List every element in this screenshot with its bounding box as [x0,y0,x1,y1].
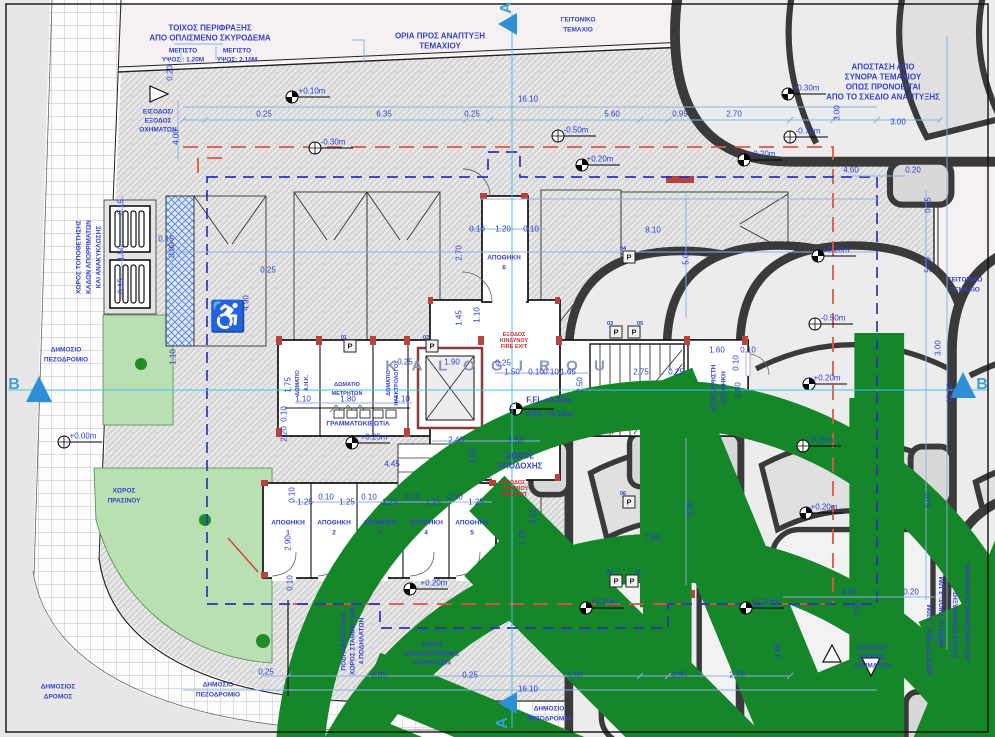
storage6-label: ΑΠΟΘΗΚΗ [487,255,521,262]
dim-label: 1.60 [709,346,725,355]
spot-level: +0.20m [751,598,778,607]
reception-label: ΧΩΡΟΣ [506,452,534,461]
development-limit-label: ΟΡΙΑ ΠΡΟΣ ΑΝΑΠΤΥΞΗ [395,32,485,41]
common-storage-label: ΑΠΟΘΗΚΗ [721,371,728,405]
spot-level: -0.30m [809,436,834,445]
turning-area-label: ΟΧΗΜΑΤΩΝ [413,660,450,667]
road-label: ΔΗΜΟΣΙΟΣ [41,684,76,691]
dim-label: 2.40 [448,436,464,445]
storage-room-label: ΑΠΟΘΗΚΗ [317,520,351,527]
bike-parking-label: ΧΩΡΟΣ ΣΤΑΘΜΕΥΣΗΣ [350,607,357,675]
dim-label: 0.25 [260,266,276,275]
parking-tag: P [623,496,636,509]
dim-label: 2.80 [734,382,743,398]
reception-label: ΥΠΟΔΟΧΗΣ [498,462,543,471]
dim-label: 0.95 [671,671,687,680]
dim-label: 0.10 [318,493,334,502]
spot-level: +0.25m [361,433,388,442]
vehicle-access-label: ΕΞΟΔΟΣ [859,654,886,661]
parking-number: 07 [635,570,641,576]
dim-label: 8.10 [645,226,661,235]
dim-label: 1.50 [508,436,524,445]
dim-label: 5.00 [686,501,695,517]
storage-room-number: 5 [470,530,474,537]
parking-number: 06 [620,491,626,497]
dim-label: 3.90 [168,242,177,258]
dim-label: 0.25 [495,359,511,368]
dim-label: 0.10 [361,493,377,502]
turning-area-label: ΧΩΡΟΣ [421,642,444,649]
parking-tag: P [623,251,636,264]
disabled-aisle-hatch [166,196,194,346]
fence-label: ΤΟΙΧΟΣ ΠΕΡΙΦΡΑΞΗΣ [168,24,251,33]
fence-label-right: ΑΠΟ ΟΠΛΙΣΜΕΝΟ ΣΚΥΡΟΔΕΜΑ [965,563,972,662]
room-ahk-label: Α.Η.Κ. [304,375,310,392]
dim-label: 5.60 [567,671,583,680]
dim-label: 0.10 [286,575,295,591]
mailboxes-label: ΓΡΑΜΜΑΤΟΚΙΒΩΤΙΑ [326,421,389,428]
dim-label: 3.00 [833,105,842,121]
dim-label: 1.75 [518,530,527,546]
mailbox-slots [334,410,396,418]
max-height-label: ΥΨΟΣ : 1.20M [162,57,204,64]
dim-label: 0.25 [464,110,480,119]
spot-level: -0.70m [796,127,821,136]
bins-label: ΚΑΙ ΑΝΑΚΥΚΛΩΣΗΣ [96,226,103,289]
dim-label: 4.65 [841,588,857,597]
parking-tag: P [344,340,357,353]
storage-room-label: ΑΠΟΘΗΚΗ [455,520,489,527]
waste-bins [104,200,156,314]
parking-tag: P [626,575,639,588]
bike-parking-label: ΠΟΔΗΛΑΤΟΣΤΑΣΙΟ [341,611,348,670]
vehicle-access-label: ΟΧΗΜΑΤΩΝ [853,663,890,670]
fence-label-right: ΜΕΓΙΣΤΟ ΥΨΟΣ: 2.10M [939,577,946,648]
green-area-label: ΧΩΡΟΣ [113,488,136,495]
fence-label-right: ΤΟΙΧΟΣ ΠΕΡΙΦΡΑΞΗΣ [953,591,960,659]
dim-label: 1.50 [117,245,126,261]
dim-label: 2.20 [280,426,289,442]
fence-label-right: ΜΕΓΙΣΤΟ ΥΨΟΣ: 1.20M [927,605,934,676]
dim-label: 0.10 [447,493,463,502]
max-height-label: ΜΕΓΙΣΤΟ [223,48,251,55]
dim-label: 1.25 [339,498,355,507]
spot-level: +0.20m [591,598,618,607]
spot-level: +0.00m [70,432,97,441]
dim-label: 0.10 [732,355,741,371]
dim-label: 0.10 [543,368,559,377]
green-area-label: ΠΡΑΣΙΝΟΥ [108,498,141,505]
parking-number: 03 [607,321,613,327]
dim-label: 1.10 [169,349,178,365]
dim-label: 6.35 [371,671,387,680]
turning-area-label: ΕΠΑΝΑΣΤΡΟΦΗΣ [405,651,459,658]
fire-exit-label: FIRE EXIT [501,344,527,350]
spot-level: +0.20m [587,155,614,164]
storage-room-label: ΑΠΟΘΗΚΗ [409,520,443,527]
dim-label: 1.50 [469,448,478,464]
dim-label: 1.45 [455,310,464,326]
dim-label: 1.10 [473,307,482,323]
spot-level: +0.30m [793,84,820,93]
spot-level: +0.20m [749,150,776,159]
spot-level: -0.30m [321,138,346,147]
dim-label: 2.50 [576,377,585,393]
setback-note: ΑΠΟ ΤΟ ΣΧΕΔΙΟ ΑΝΑΠΤΥΞΗΣ [826,93,940,102]
spot-level: +0.20m [421,579,448,588]
dim-label: 1.65 [560,368,576,377]
storage6-number: 6 [502,265,506,272]
setback-note: ΑΠΟΣΤΑΣΗ ΑΠΟ [852,63,915,72]
neighbor-parcel-label: ΤΕΜΑΧΙΟ [950,287,980,294]
bins-label: ΧΩΡΟΣ ΤΟΠΟΘΕΤΗΣΗΣ [76,220,83,294]
dim-label: 0.25 [258,668,274,677]
storage-room-label: ΑΠΟΘΗΚΗ [363,520,397,527]
max-height-label: ΜΕΓΙΣΤΟ [169,48,197,55]
development-limit-label: ΤΕΜΑΧΙΟΥ [419,42,461,51]
vehicle-access-label: ΕΙΣΟΔΟΣ/ [857,645,887,652]
dim-label: 2.90 [284,535,293,551]
dim-label: 3.00 [890,118,906,127]
sidewalk-label: ΠΕΖΟΔΡΟΜΙΟ [196,692,240,699]
dim-label: 2.70 [455,245,464,261]
sidewalk-label: ΠΕΖΟΔΡΟΜΙΟ [527,716,571,723]
parking-number: 04 [620,246,626,252]
dim-label: 3.45 [774,643,783,659]
spot-level: +0.10m [299,87,326,96]
dim-label: 0.15 [117,199,126,215]
dim-label: 1.10 [394,395,410,404]
parking-tag: P [610,575,623,588]
dim-label: 0.10 [288,487,297,503]
storage-room-label: ΑΠΟΘΗΚΗ [271,520,305,527]
dim-label: 0.15 [117,278,126,294]
dim-label: 0.25 [668,368,684,377]
dim-label: 0.20 [905,166,921,175]
sidewalk-label: ΠΕΖΟΔΡΟΜΙΟ [44,357,88,364]
common-storage-label: ΚΟΙΝΟΧΡΗΣΤΗ [711,365,718,412]
sidewalk-label: ΔΗΜΟΣΙΟ [534,706,565,713]
vehicle-access-label: ΕΞΟΔΟΣ [145,118,172,125]
dim-label: 5.00 [682,249,691,265]
bins-label: ΚΑΔΩΝ ΑΠΟΡΡΙΜΑΤΩΝ [86,220,93,294]
dim-label: 2.75 [633,368,649,377]
setback-note: ΟΠΩΣ ΠΡΟΝΟΕΙΤΑΙ [846,83,921,92]
dim-label: 0.10 [523,225,539,234]
dim-label: 7.50 [644,534,660,543]
dim-label: 1.10 [295,395,311,404]
dim-label: 1.20 [495,225,511,234]
dim-label: 0.10 [469,225,485,234]
dim-label: 2.70 [726,110,742,119]
dim-label: 4.90 [242,295,251,311]
site-plan-sheet: ΤΟΙΧΟΣ ΠΕΡΙΦΡΑΞΗΣ ΑΠΟ ΟΠΛΙΣΜΕΝΟ ΣΚΥΡΟΔΕΜ… [0,0,995,737]
parking-tag: P [628,326,641,339]
dim-label: 0.10 [740,346,756,355]
room-meters-label: ΔΩΜΑΤΙΟ [334,382,360,388]
setback-note: ΣΥΝΟΡΑ ΤΕΜΑΧΙΟΥ [845,73,921,82]
spot-level: +0.20m [811,503,838,512]
dim-label: 0.10 [528,368,544,377]
dim-label: 0.10 [404,493,420,502]
fence-label: ΑΠΟ ΟΠΛΙΣΜΕΝΟ ΣΚΥΡΟΔΕΜΑ [149,34,270,43]
dim-label: 0.95 [672,110,688,119]
spot-level: -0.50m [821,314,846,323]
dim-label: 13.50 [946,383,955,403]
neighbor-parcel-label: ΤΕΜΑΧΙΟ [563,27,593,34]
dim-label: 0.20 [166,65,175,81]
dim-label: 0.20 [903,588,919,597]
spot-level: +0.20m [814,374,841,383]
structural-floor-level: S.FL.+0.15m [526,410,573,419]
dim-label: 1.50 [504,368,520,377]
green-area-upper [103,315,173,425]
parking-tag: P [610,326,623,339]
dim-label: 0.25 [924,197,933,213]
dim-label: 4.45 [384,460,400,469]
room-elec-label: ΔΩΜΑΤΙΟ [386,370,392,396]
vehicle-access-label: ΕΙΣΟΔΟΣ/ [143,109,173,116]
dim-label: 1.75 [284,377,293,393]
dim-label: 5.00 [924,257,933,273]
dim-label: 6.35 [376,110,392,119]
max-height-label: ΥΨΟΣ: 2.10M [217,57,258,64]
dim-label: 5.00 [924,492,933,508]
dim-label: 2.70 [729,671,745,680]
dim-label: 0.25 [853,600,862,616]
bike-parking-label: 4 ΠΟΔΗΛΑΤΩΝ [359,618,366,665]
dim-label: 0.25 [256,110,272,119]
parking-number: 05 [637,321,643,327]
dim-label: 1.90 [444,358,460,367]
section-marker-a: A [494,717,512,729]
section-marker-b: B [8,376,20,394]
dim-label: 5.60 [604,110,620,119]
dim-label: 1.25 [297,498,313,507]
storage-room-number: 2 [332,530,336,537]
parking-tag: P [426,340,439,353]
room-ahk-label: ΔΩΜΑΤΙΟ [295,370,301,396]
dim-label: 0.10 [280,406,289,422]
section-marker-a: A [498,2,516,14]
neighbor-parcel-label: ΓΕΙΤΟΝΙΚΟ [948,277,983,284]
storage-room-number: 3 [378,530,382,537]
neighbor-parcel-label: ΓΕΙΤΟΝΙΚΟ [561,17,596,24]
sidewalk-label: ΔΗΜΟΣΙΟ [203,682,234,689]
fire-exit-label: FIRE EXIT [501,492,527,498]
road-label: ΔΡΟΜΟΣ [44,694,72,701]
dim-label: 1.80 [340,395,356,404]
parking-number: 08 [607,570,613,576]
dim-label: 0.25 [397,358,413,367]
dim-label: 1.25 [425,498,441,507]
dim-label: 4.00 [172,129,181,145]
dim-label: 3.50 [529,508,538,524]
dim-label: 3.00 [934,340,943,356]
dim-label: 4.60 [843,166,859,175]
finished-floor-level: F.FL.+0.30m [526,396,572,405]
dim-label: 16.10 [518,685,538,694]
storage-room-number: 4 [424,530,428,537]
dim-label: 1.25 [382,498,398,507]
spot-level: +0.20m [823,246,850,255]
spot-level: -0.50m [564,126,589,135]
sidewalk-label: ΔΗΜΟΣΙΟ [51,347,82,354]
dim-label: 1.25 [468,498,484,507]
dim-label: 0.25 [462,671,478,680]
parking-number: 01 [341,335,347,341]
dim-label: 16.10 [518,95,538,104]
section-marker-b: B [976,376,988,394]
parking-number: 02 [423,335,429,341]
